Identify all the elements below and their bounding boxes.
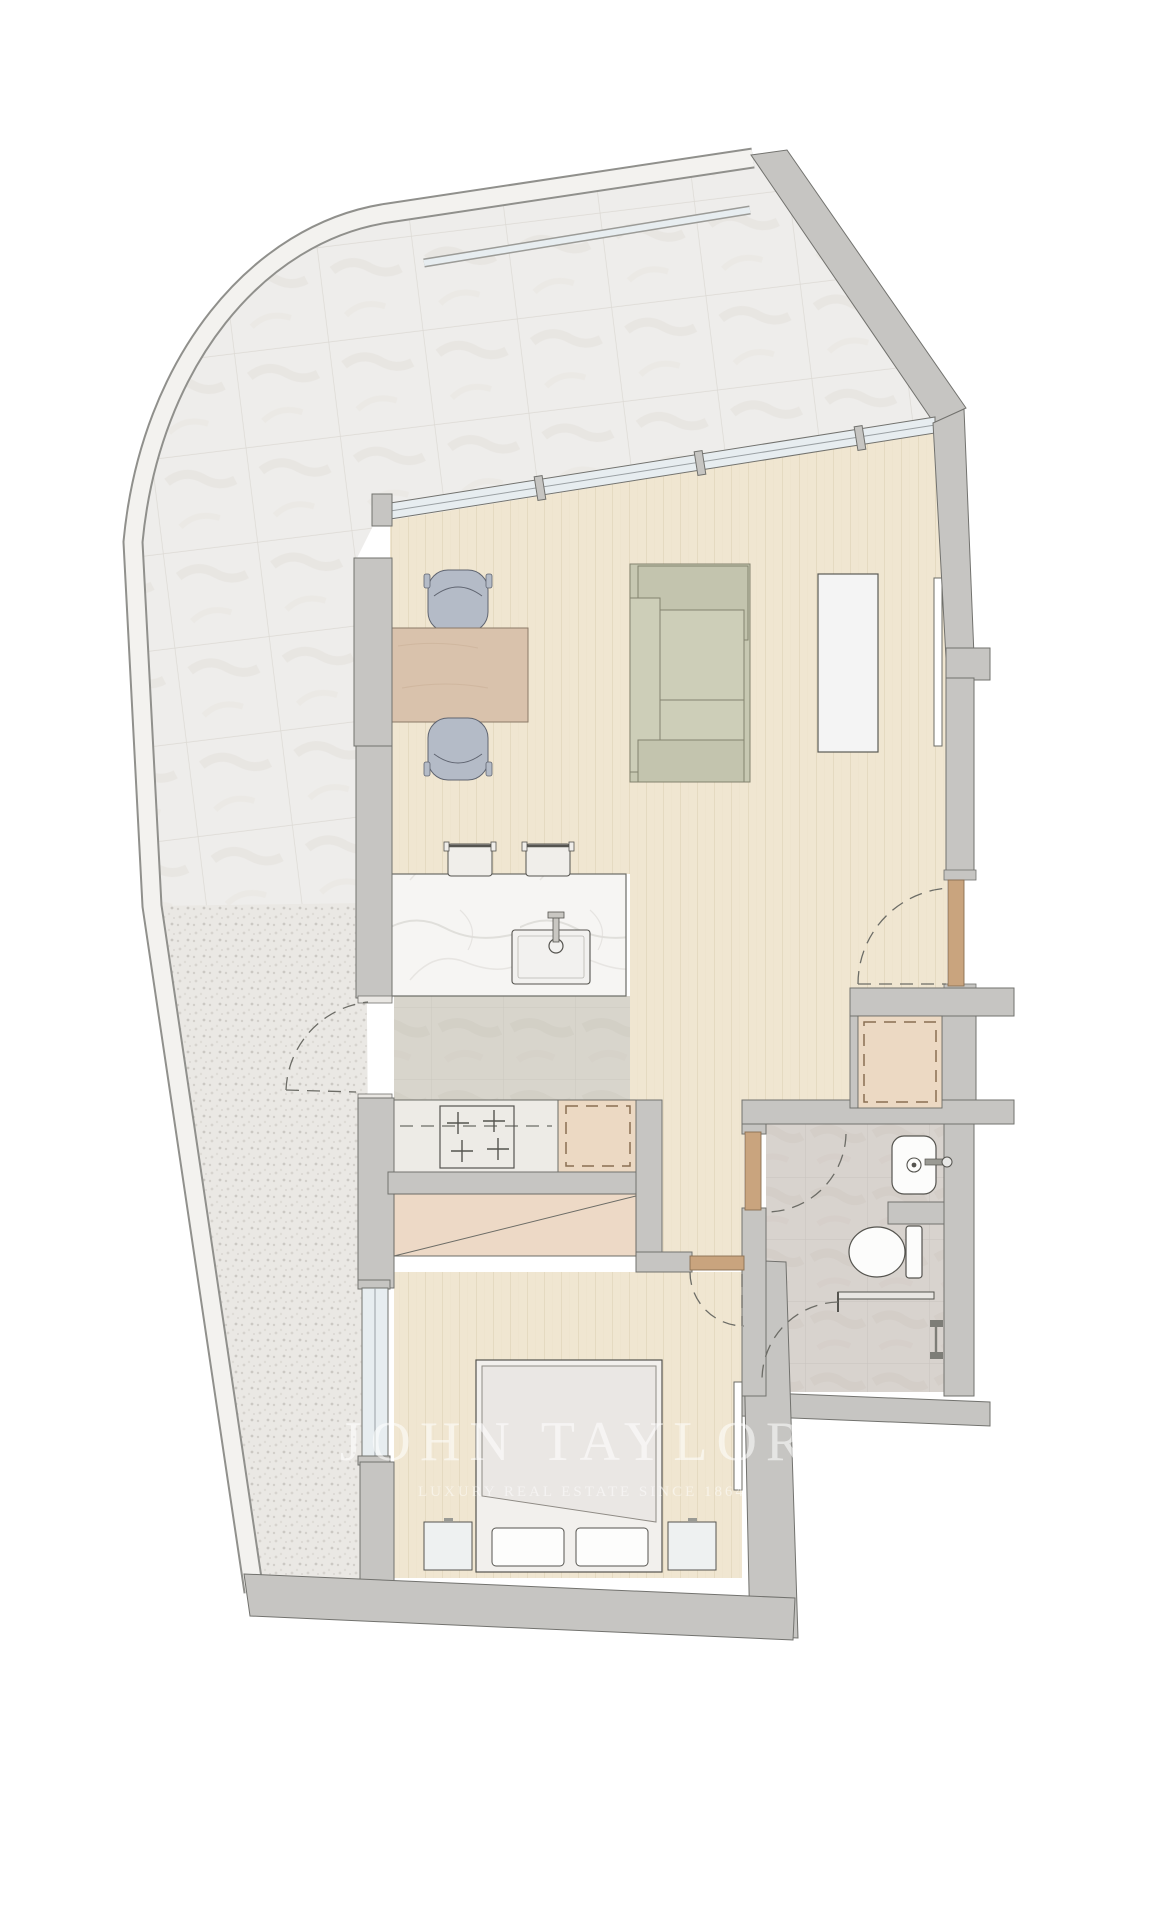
terrace-door-jamb — [358, 996, 392, 1003]
right-wall — [946, 678, 974, 876]
terrace-gravel-strip — [152, 903, 372, 1592]
wardrobe — [394, 1194, 636, 1256]
floor-plan-page: JOHN TAYLOR LUXURY REAL ESTATE SINCE 186… — [0, 0, 1169, 1920]
left-wall — [356, 746, 392, 998]
utility-closet — [850, 1016, 942, 1108]
bar-stool — [522, 842, 574, 876]
entry-south-wall — [850, 988, 1014, 1016]
bedroom-north-wall — [636, 1252, 692, 1272]
entry-door-jamb — [944, 870, 976, 880]
floor-plan-drawing: JOHN TAYLOR LUXURY REAL ESTATE SINCE 186… — [0, 0, 1169, 1920]
kitchen-floor — [394, 996, 630, 1100]
refrigerator-icon — [558, 1100, 638, 1172]
right-wall-step — [946, 648, 990, 680]
sofa — [630, 564, 750, 782]
bar-stool — [444, 842, 496, 876]
south-wall — [244, 1574, 795, 1640]
pillow — [492, 1528, 564, 1566]
bathroom-stub-wall — [888, 1202, 944, 1224]
utility-right-wall — [942, 1016, 976, 1108]
left-wall — [354, 558, 392, 746]
watermark-tagline: LUXURY REAL ESTATE SINCE 1864 — [418, 1484, 746, 1500]
wall-mirror — [934, 578, 942, 746]
kitchen-counter-back-wall — [388, 1172, 640, 1194]
dining-chair — [424, 570, 492, 632]
toilet — [849, 1226, 922, 1278]
nightstand — [424, 1518, 472, 1570]
dining-chair — [424, 718, 492, 780]
nightstand — [668, 1518, 716, 1570]
shower-screen — [838, 1292, 934, 1299]
hallway-wall — [636, 1100, 662, 1258]
dining-table — [388, 628, 528, 722]
left-wall — [360, 1462, 394, 1582]
watermark-brand: JOHN TAYLOR — [340, 1411, 813, 1473]
window-end-cap — [372, 494, 392, 526]
tv-console — [818, 574, 878, 752]
pillow — [576, 1528, 648, 1566]
